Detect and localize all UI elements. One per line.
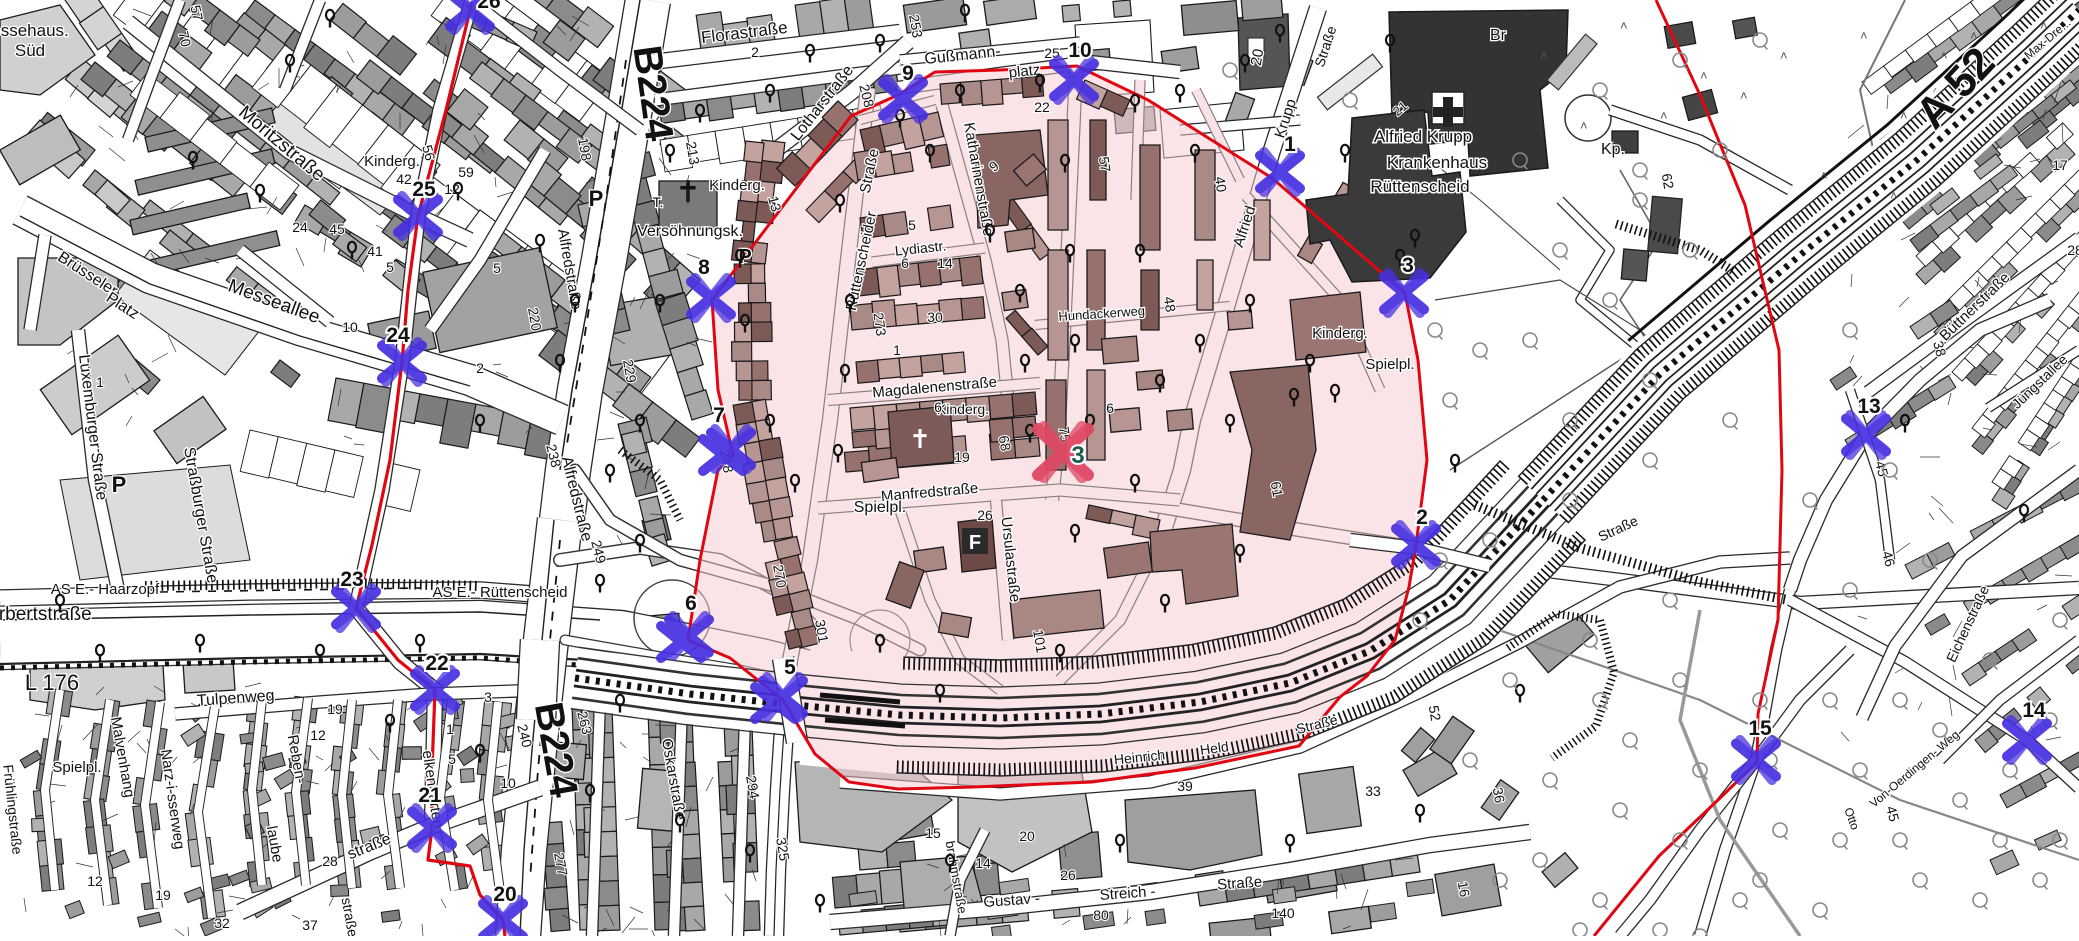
svg-text:25: 25	[412, 178, 436, 201]
svg-text:20: 20	[1248, 48, 1268, 67]
svg-text:6: 6	[1106, 400, 1114, 416]
svg-text:˄: ˄	[1660, 108, 1668, 123]
svg-text:˄: ˄	[1740, 88, 1748, 103]
svg-text:˄: ˄	[1890, 188, 1898, 203]
svg-text:22: 22	[1034, 99, 1050, 115]
svg-text:2: 2	[1416, 506, 1428, 529]
svg-text:14: 14	[2022, 699, 2046, 722]
svg-text:Spielpl.: Spielpl.	[52, 759, 101, 776]
svg-text:˄: ˄	[1540, 48, 1548, 63]
svg-text:10: 10	[342, 319, 358, 335]
svg-text:5: 5	[448, 751, 456, 767]
svg-text:3: 3	[484, 689, 492, 705]
svg-text:21: 21	[418, 784, 442, 807]
svg-text:˄: ˄	[1780, 48, 1788, 63]
svg-text:Kinderg.: Kinderg.	[364, 153, 420, 170]
svg-text:14: 14	[975, 855, 991, 871]
svg-text:orbertstraße: orbertstraße	[0, 604, 92, 625]
svg-text:AS E.- Haarzopf: AS E.- Haarzopf	[51, 581, 160, 598]
svg-text:22: 22	[425, 652, 448, 675]
svg-text:˄: ˄	[1580, 118, 1588, 133]
svg-text:61: 61	[1268, 480, 1286, 498]
svg-text:1: 1	[446, 721, 454, 737]
svg-text:2: 2	[751, 44, 759, 60]
svg-text:6: 6	[934, 399, 942, 415]
svg-text:19: 19	[954, 449, 970, 465]
svg-text:13: 13	[1857, 395, 1880, 418]
svg-text:68: 68	[996, 434, 1014, 452]
svg-text:80: 80	[1093, 907, 1109, 923]
svg-text:36: 36	[1490, 786, 1508, 804]
svg-text:40: 40	[1212, 175, 1230, 193]
svg-text:24: 24	[386, 324, 410, 347]
svg-text:42: 42	[396, 171, 412, 187]
svg-text:19: 19	[327, 701, 343, 717]
svg-text:8: 8	[698, 256, 710, 279]
svg-text:16: 16	[1455, 880, 1473, 898]
svg-text:30: 30	[927, 309, 943, 325]
svg-text:✝: ✝	[909, 424, 931, 454]
svg-text:1: 1	[1284, 133, 1296, 156]
svg-text:AS E.- Rüttenscheid: AS E.- Rüttenscheid	[432, 584, 567, 601]
svg-text:26: 26	[477, 0, 500, 13]
svg-text:12: 12	[87, 873, 103, 889]
svg-text:62: 62	[1659, 172, 1677, 190]
svg-text:7: 7	[713, 404, 725, 427]
svg-text:59: 59	[458, 164, 474, 180]
svg-text:17: 17	[2052, 157, 2068, 173]
svg-text:6: 6	[685, 592, 697, 615]
svg-text:˄: ˄	[1620, 18, 1628, 33]
svg-text:L 176: L 176	[25, 670, 79, 695]
svg-text:15: 15	[925, 825, 941, 841]
svg-text:Kinderg.: Kinderg.	[1312, 325, 1368, 342]
svg-text:19: 19	[155, 887, 171, 903]
svg-text:52: 52	[1426, 704, 1444, 722]
svg-text:Süd: Süd	[15, 41, 45, 60]
svg-text:˄: ˄	[1700, 68, 1708, 83]
svg-text:14: 14	[937, 255, 953, 271]
svg-text:5: 5	[908, 217, 916, 233]
svg-text:15: 15	[1748, 717, 1772, 740]
svg-text:3: 3	[1402, 254, 1414, 277]
svg-text:˄: ˄	[1900, 108, 1908, 123]
svg-text:12: 12	[310, 727, 326, 743]
svg-text:26: 26	[977, 507, 993, 523]
svg-text:48: 48	[1161, 295, 1179, 313]
svg-text:Krankenhaus: Krankenhaus	[1387, 153, 1487, 172]
svg-text:T.: T.	[653, 194, 664, 210]
svg-text:Spielpl.: Spielpl.	[1365, 356, 1414, 373]
svg-text:Rüttenscheid: Rüttenscheid	[1370, 177, 1469, 196]
svg-text:Spielpl.: Spielpl.	[854, 499, 906, 516]
svg-text:32: 32	[214, 915, 230, 931]
svg-text:39: 39	[1177, 778, 1193, 794]
svg-text:Straße: Straße	[1217, 873, 1263, 893]
svg-text:33: 33	[1365, 783, 1381, 799]
svg-text:Br: Br	[1490, 27, 1507, 44]
svg-text:3: 3	[1071, 442, 1084, 469]
svg-text:57: 57	[1096, 155, 1114, 173]
svg-text:20: 20	[493, 883, 516, 906]
svg-text:5: 5	[493, 260, 501, 276]
svg-text:5: 5	[784, 656, 796, 679]
svg-text:Versöhnungsk.: Versöhnungsk.	[637, 223, 743, 240]
svg-text:Kinderg.: Kinderg.	[709, 177, 765, 194]
svg-text:20: 20	[1019, 828, 1035, 844]
svg-text:Kinderg.: Kinderg.	[937, 401, 989, 417]
svg-text:F: F	[969, 532, 981, 554]
svg-text:˄: ˄	[1970, 28, 1978, 43]
svg-text:140: 140	[1271, 905, 1295, 921]
svg-text:essehaus.: essehaus.	[0, 21, 69, 40]
svg-text:28: 28	[2067, 242, 2079, 258]
svg-text:24: 24	[292, 219, 308, 235]
svg-text:1: 1	[893, 342, 901, 358]
svg-text:23: 23	[340, 568, 363, 591]
svg-text:41: 41	[367, 243, 383, 259]
svg-text:Kp.: Kp.	[1601, 141, 1625, 158]
svg-text:6: 6	[901, 255, 909, 271]
svg-text:37: 37	[302, 917, 318, 933]
svg-text:P: P	[112, 472, 127, 497]
svg-text:P: P	[589, 186, 604, 211]
svg-text:2: 2	[476, 360, 484, 376]
svg-text:9: 9	[902, 62, 914, 85]
svg-text:˄: ˄	[1860, 28, 1868, 43]
svg-text:˄: ˄	[1940, 48, 1948, 63]
svg-text:5: 5	[386, 259, 394, 275]
svg-text:˄: ˄	[2040, 18, 2048, 33]
svg-text:273: 273	[870, 312, 889, 338]
svg-text:Alfried Krupp: Alfried Krupp	[1374, 127, 1472, 146]
svg-text:1: 1	[96, 374, 104, 390]
svg-text:26: 26	[1060, 867, 1076, 883]
svg-text:45: 45	[329, 221, 345, 237]
svg-text:28: 28	[322, 853, 338, 869]
svg-text:˄: ˄	[1820, 168, 1828, 183]
svg-text:10: 10	[1068, 39, 1091, 62]
svg-text:10: 10	[500, 775, 516, 791]
